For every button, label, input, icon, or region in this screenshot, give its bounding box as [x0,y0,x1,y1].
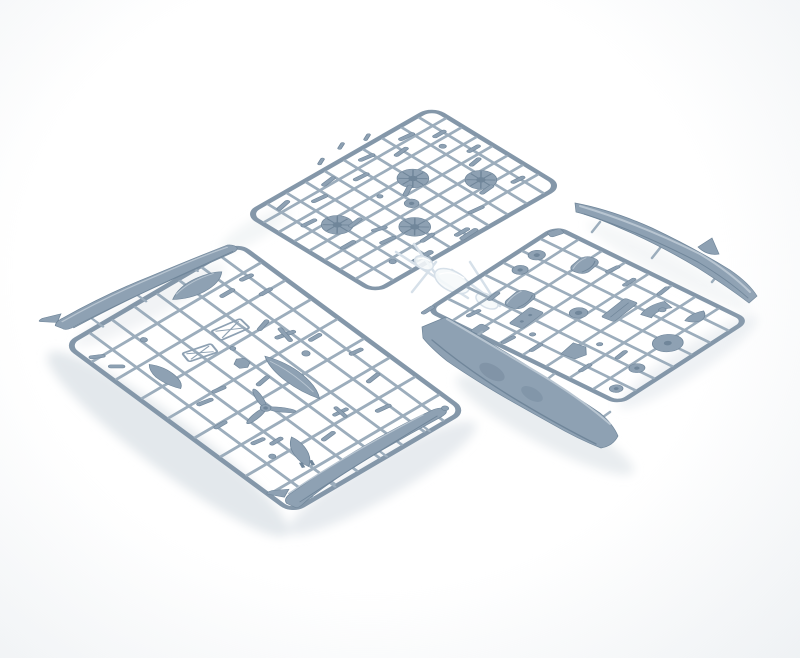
photo-canvas [0,0,800,658]
product-photo [0,0,800,658]
